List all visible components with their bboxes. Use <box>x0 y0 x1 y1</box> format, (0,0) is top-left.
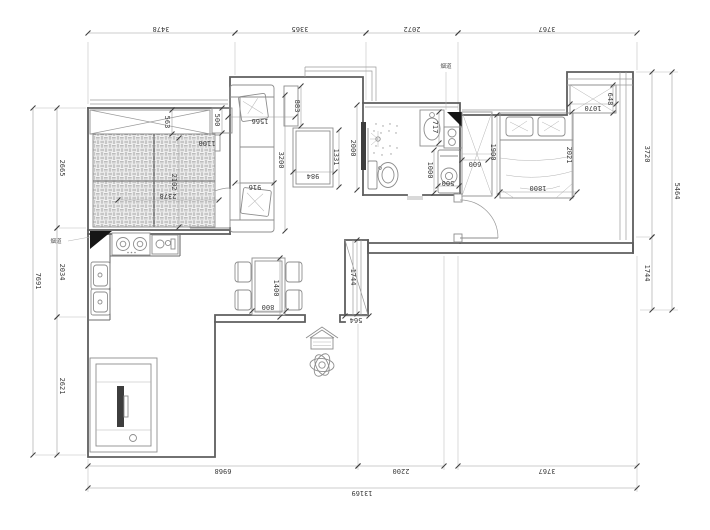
dimension-label: 2102 <box>170 174 178 191</box>
bath-flue <box>446 72 462 127</box>
dimension-label: 2378 <box>160 192 177 200</box>
dimension-label: 7691 <box>34 273 42 290</box>
tv-living <box>361 122 368 170</box>
dimension-label: 1000 <box>426 162 434 179</box>
floor-plan-drawing: 烟道 <box>0 0 710 530</box>
dimension-label: 3767 <box>539 25 556 33</box>
sofa <box>230 85 274 232</box>
dimension-label: 2072 <box>404 25 421 33</box>
shower-head-icon <box>370 131 380 147</box>
dimension-label: 800 <box>262 303 275 311</box>
dimension-label: 1070 <box>585 104 602 112</box>
shower-area <box>370 123 398 155</box>
dimension-label: 1744 <box>349 269 357 286</box>
plant <box>309 351 334 378</box>
extension-lines <box>35 42 678 492</box>
dimension-label: 648 <box>606 93 614 106</box>
door-bedroom <box>454 194 498 242</box>
wardrobe-600 <box>462 112 492 196</box>
kitchen-basin <box>91 262 110 315</box>
dimension-label: 2200 <box>393 467 410 475</box>
dimension-label: 600 <box>469 160 482 168</box>
bath-flue-label: 烟道 <box>440 62 452 70</box>
dimension-label: 2034 <box>58 264 66 281</box>
kitchen-stove <box>112 233 150 255</box>
dimension-label: 1566 <box>252 117 269 125</box>
kitchen-sink-counter <box>152 235 178 254</box>
tv-cabinet <box>90 358 157 452</box>
dimension-label: 984 <box>307 172 320 180</box>
dimension-label: 916 <box>249 183 262 191</box>
dimension-label: 1900 <box>489 144 497 161</box>
dimension-label: 5464 <box>673 183 681 200</box>
entry-marker <box>306 327 338 349</box>
dimension-label: 1331 <box>332 149 340 166</box>
dimension-label: 1744 <box>643 265 651 282</box>
dimension-label: 3478 <box>153 25 170 33</box>
dimension-label: 2621 <box>58 378 66 395</box>
kitchen-flue-label: 烟道 <box>50 237 62 245</box>
dimension-label: 13169 <box>351 489 372 497</box>
dimension-label: 3200 <box>277 152 285 169</box>
dimension-label: 500 <box>442 179 455 187</box>
dimension-label: 2665 <box>58 160 66 177</box>
dimension-label: 3767 <box>539 467 556 475</box>
dimension-label: 2000 <box>349 140 357 157</box>
dimension-label: 883 <box>293 100 301 113</box>
dimension-label: 1100 <box>199 139 216 147</box>
toilet <box>368 161 398 189</box>
dimension-label: 717 <box>431 121 439 134</box>
dimension-label: 2021 <box>565 147 573 164</box>
dimension-label: 563 <box>163 116 171 129</box>
dimension-label: 564 <box>350 316 363 324</box>
dimension-label: 1400 <box>272 280 280 297</box>
dimension-label: 3720 <box>643 146 651 163</box>
kitchen-flue <box>68 231 112 249</box>
dimension-label: 1800 <box>530 184 547 192</box>
floor-plan-canvas: 烟道 <box>0 0 710 530</box>
dimension-label: 6968 <box>215 467 232 475</box>
dimension-layer: 3478336520723767696822003767131692665203… <box>31 25 682 497</box>
dimension-label: 500 <box>213 114 221 127</box>
dimension-label: 3365 <box>292 25 309 33</box>
room2-bed <box>93 134 215 227</box>
